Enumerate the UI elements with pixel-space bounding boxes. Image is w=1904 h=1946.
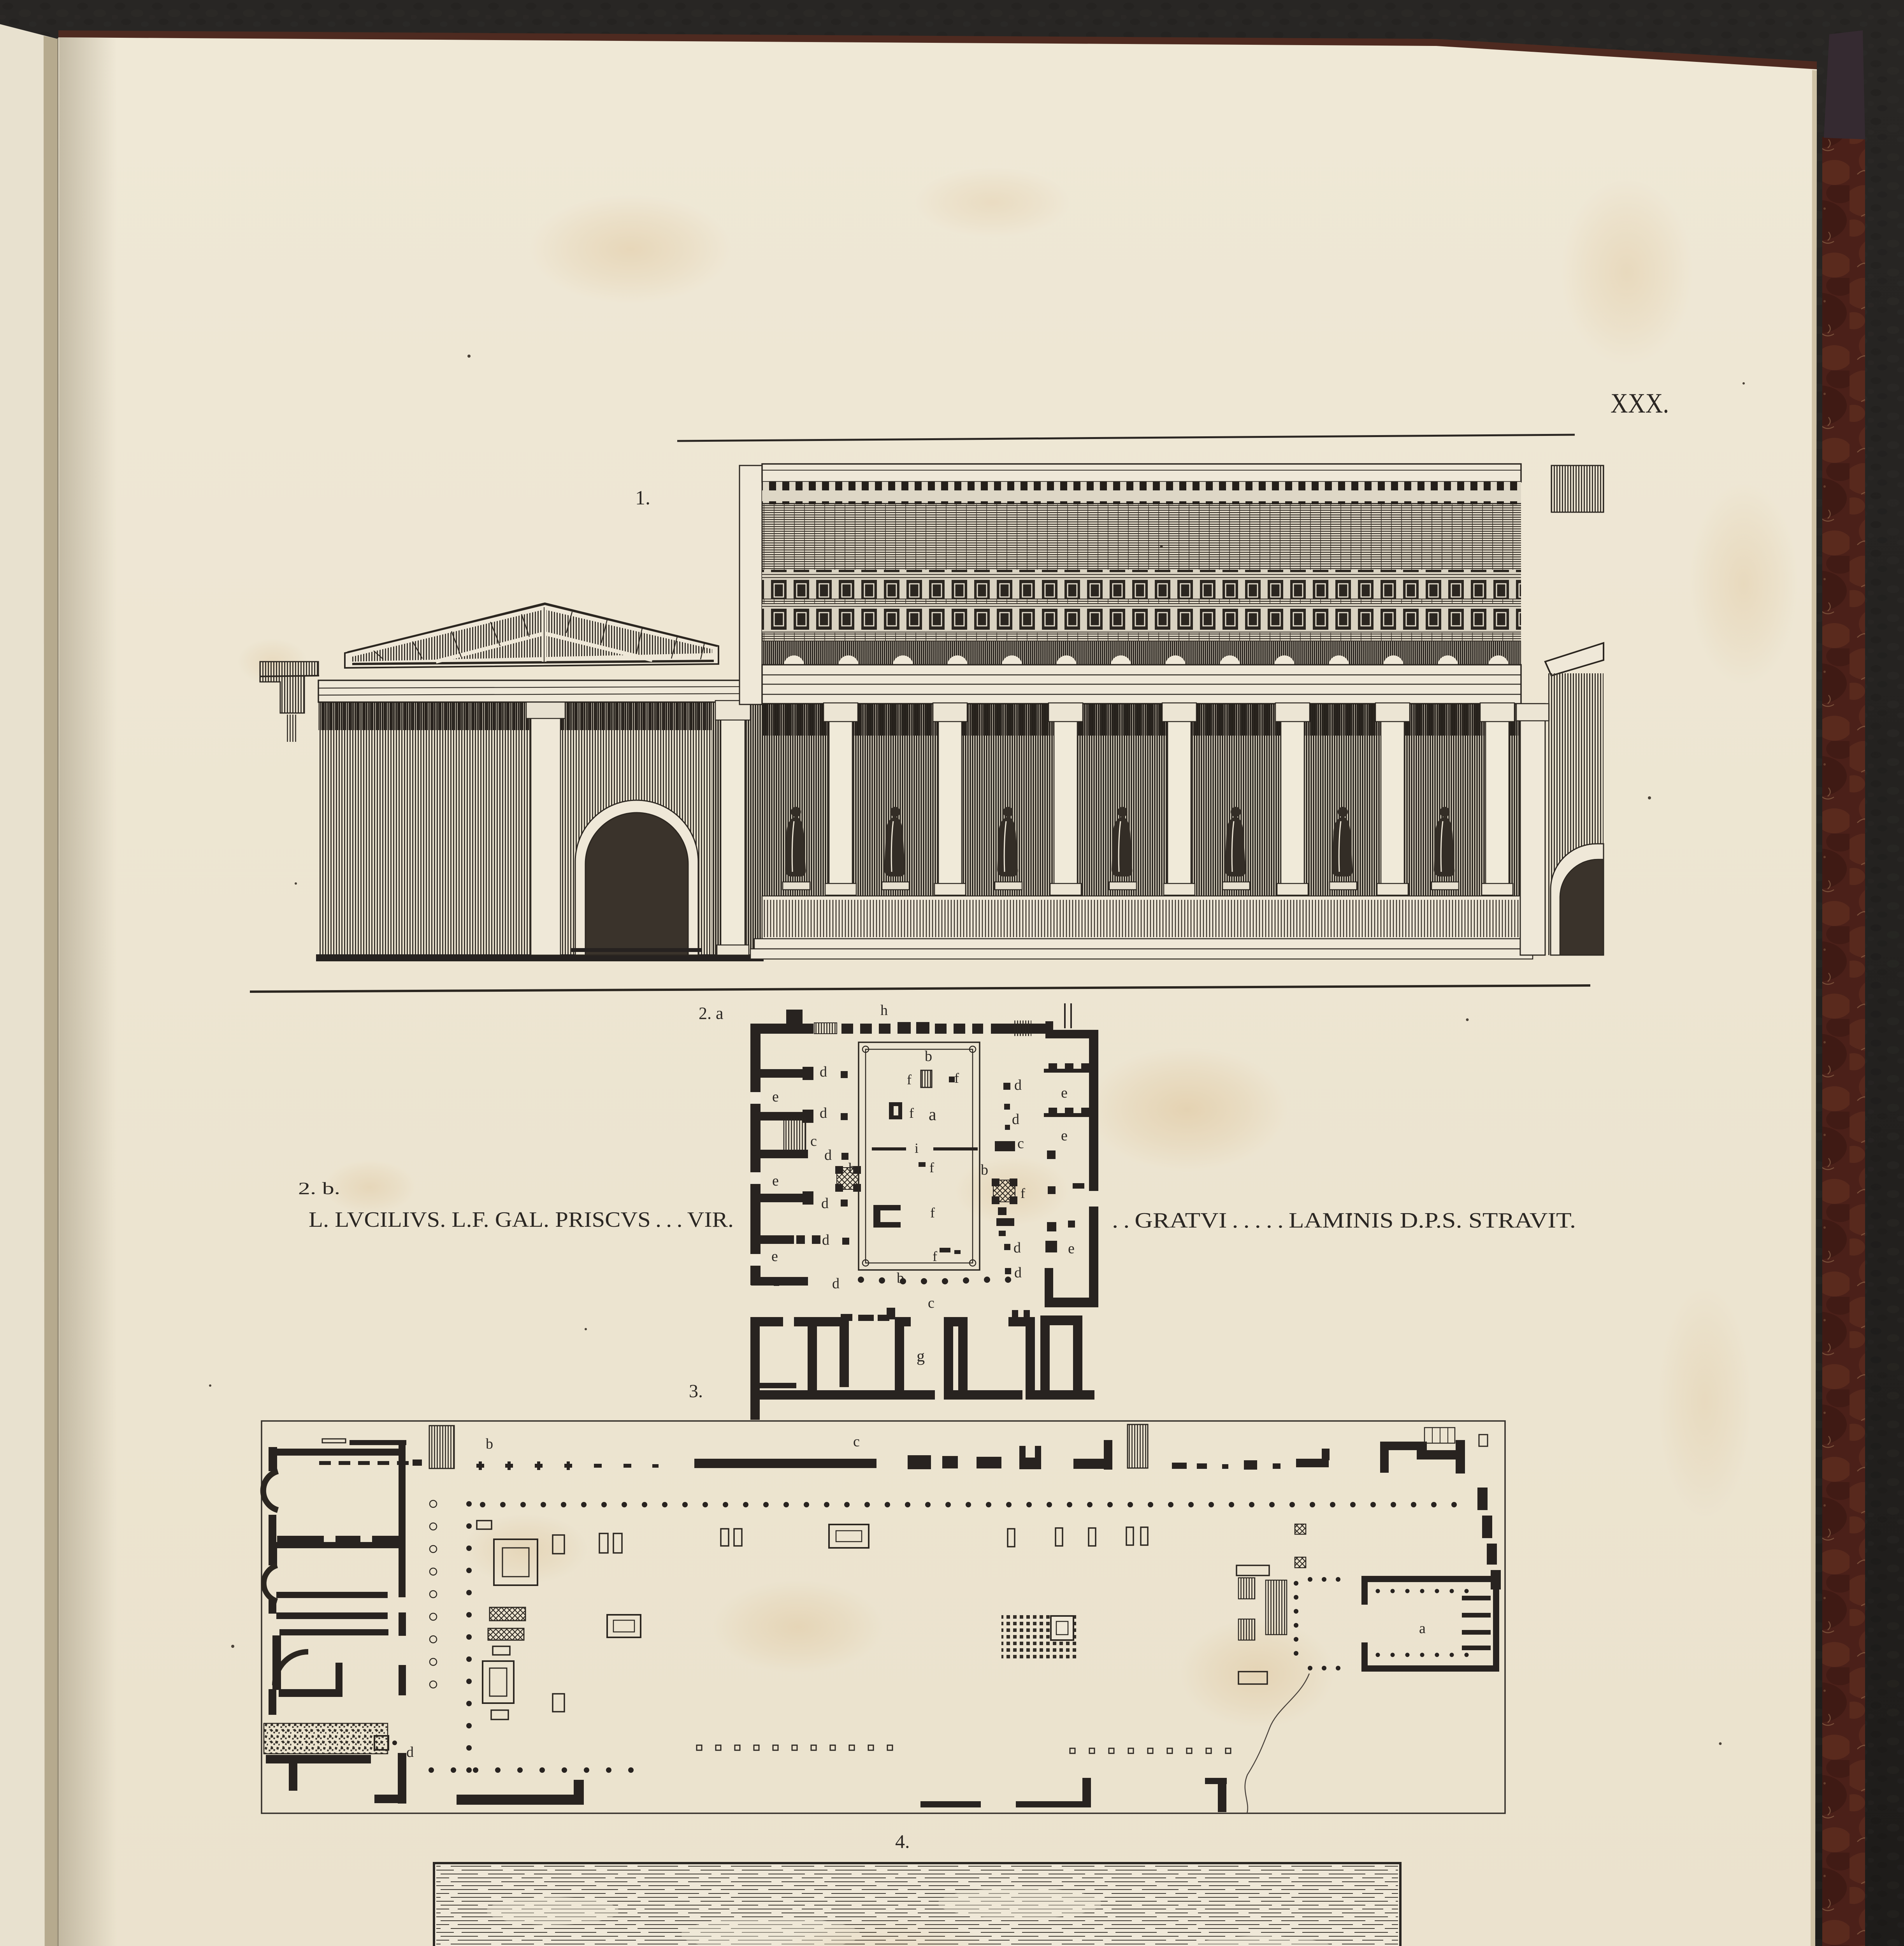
svg-text:XXX.: XXX.	[1611, 388, 1669, 419]
svg-text:e: e	[1068, 1240, 1075, 1257]
svg-text:2. a: 2. a	[699, 1004, 724, 1023]
svg-text:e: e	[1061, 1085, 1068, 1101]
svg-text:L. LVCILIVS. L.F. GAL. PRISCVS: L. LVCILIVS. L.F. GAL. PRISCVS . . . VIR…	[309, 1208, 734, 1232]
svg-text:. . GRATVI . . . . . LAMINIS D: . . GRATVI . . . . . LAMINIS D.P.S. STRA…	[1112, 1208, 1576, 1233]
svg-text:c: c	[810, 1133, 817, 1149]
svg-text:f: f	[930, 1205, 935, 1221]
svg-text:d: d	[1014, 1077, 1022, 1093]
svg-text:c: c	[928, 1295, 934, 1311]
svg-text:3.: 3.	[689, 1381, 703, 1402]
svg-text:b: b	[486, 1436, 493, 1452]
svg-text:e: e	[771, 1248, 778, 1265]
svg-text:d: d	[824, 1147, 832, 1163]
svg-text:g: g	[917, 1347, 925, 1365]
svg-text:f: f	[1021, 1186, 1025, 1201]
svg-text:d: d	[821, 1195, 829, 1212]
svg-text:e: e	[772, 1173, 779, 1189]
svg-text:d: d	[406, 1744, 414, 1760]
svg-text:d: d	[1012, 1111, 1019, 1128]
svg-text:h: h	[880, 1002, 888, 1019]
svg-text:c: c	[1017, 1135, 1024, 1152]
svg-text:f: f	[933, 1249, 937, 1264]
svg-text:d: d	[832, 1275, 840, 1292]
svg-text:d: d	[822, 1232, 829, 1248]
svg-text:1.: 1.	[635, 487, 650, 509]
svg-text:i: i	[915, 1140, 919, 1156]
svg-text:f: f	[954, 1070, 959, 1086]
svg-text:b: b	[925, 1048, 932, 1064]
svg-text:b: b	[981, 1162, 988, 1178]
svg-text:d: d	[1014, 1265, 1022, 1281]
svg-text:e: e	[772, 1089, 779, 1105]
svg-text:2. b.: 2. b.	[298, 1179, 340, 1198]
svg-text:4.: 4.	[895, 1830, 910, 1852]
svg-text:d: d	[820, 1105, 827, 1121]
svg-text:c: c	[853, 1433, 860, 1450]
svg-text:d: d	[820, 1064, 827, 1080]
svg-text:a: a	[1419, 1620, 1426, 1637]
svg-text:f: f	[907, 1072, 912, 1087]
svg-text:b: b	[848, 1160, 856, 1177]
svg-text:f: f	[909, 1105, 914, 1121]
svg-text:e: e	[1061, 1128, 1068, 1144]
svg-text:a: a	[929, 1105, 936, 1124]
svg-text:f: f	[929, 1160, 934, 1175]
svg-text:d: d	[1013, 1240, 1021, 1256]
